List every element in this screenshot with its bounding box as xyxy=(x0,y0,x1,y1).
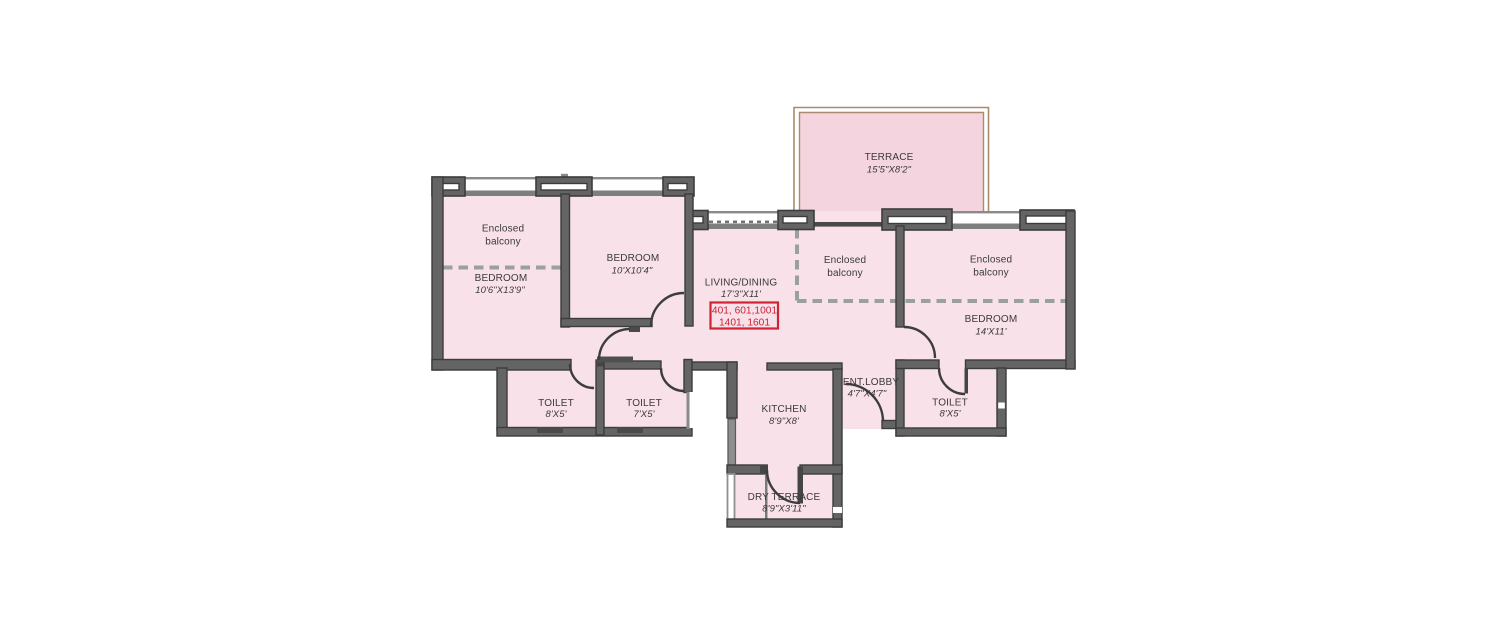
svg-text:BEDROOM: BEDROOM xyxy=(607,253,660,264)
svg-text:4'7"X4'7": 4'7"X4'7" xyxy=(848,389,887,400)
svg-text:14'X11': 14'X11' xyxy=(975,327,1007,338)
svg-text:401, 601,1001: 401, 601,1001 xyxy=(712,306,777,317)
svg-text:10'X10'4": 10'X10'4" xyxy=(612,266,653,277)
svg-text:17'3"X11': 17'3"X11' xyxy=(721,289,762,300)
svg-text:balcony: balcony xyxy=(485,237,521,248)
svg-text:KITCHEN: KITCHEN xyxy=(762,404,807,415)
svg-text:8'9"X8': 8'9"X8' xyxy=(769,416,800,427)
svg-text:15'5"X8'2": 15'5"X8'2" xyxy=(867,165,912,176)
svg-text:TOILET: TOILET xyxy=(538,398,574,409)
svg-text:ENT.LOBBY: ENT.LOBBY xyxy=(843,377,900,388)
svg-text:8'X5': 8'X5' xyxy=(939,409,961,420)
svg-text:BEDROOM: BEDROOM xyxy=(965,314,1018,325)
svg-text:LIVING/DINING: LIVING/DINING xyxy=(705,278,778,289)
svg-text:balcony: balcony xyxy=(827,268,863,279)
svg-text:Enclosed: Enclosed xyxy=(970,255,1012,266)
svg-text:BEDROOM: BEDROOM xyxy=(475,273,528,284)
svg-text:8'9"X3'11": 8'9"X3'11" xyxy=(762,504,806,515)
svg-text:DRY TERRACE: DRY TERRACE xyxy=(748,492,821,503)
svg-text:Enclosed: Enclosed xyxy=(824,255,866,266)
svg-text:10'6"X13'9": 10'6"X13'9" xyxy=(475,285,525,296)
svg-text:balcony: balcony xyxy=(973,268,1009,279)
svg-text:1401, 1601: 1401, 1601 xyxy=(719,318,770,329)
svg-text:TOILET: TOILET xyxy=(626,398,662,409)
svg-text:Enclosed: Enclosed xyxy=(482,224,524,235)
svg-text:TOILET: TOILET xyxy=(932,398,968,409)
svg-text:7'X5': 7'X5' xyxy=(633,409,655,420)
svg-text:8'X5': 8'X5' xyxy=(545,409,567,420)
svg-text:TERRACE: TERRACE xyxy=(865,152,914,163)
